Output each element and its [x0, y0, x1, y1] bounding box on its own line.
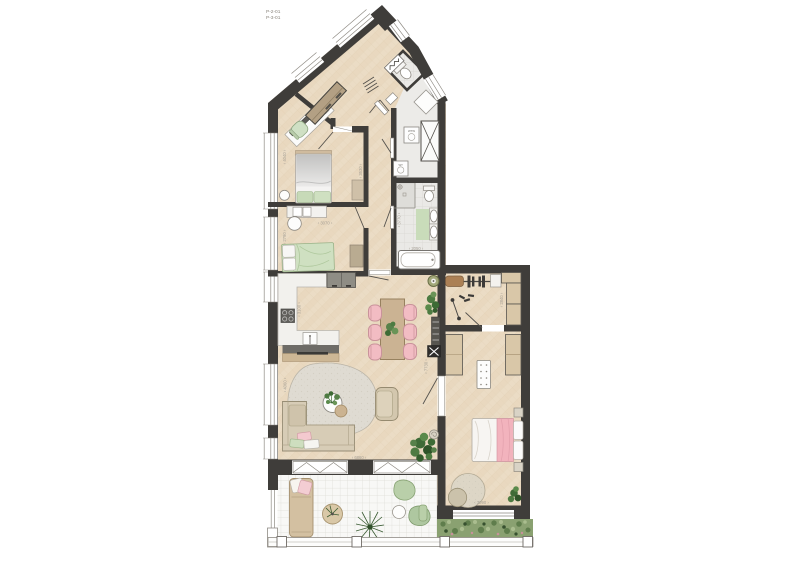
- svg-text:‹ 7730 ›: ‹ 7730 ›: [423, 359, 428, 374]
- svg-text:WTW: WTW: [408, 129, 415, 133]
- svg-text:‹ 2840 ›: ‹ 2840 ›: [499, 292, 504, 307]
- svg-text:‹ 6860 ›: ‹ 6860 ›: [352, 455, 367, 460]
- svg-text:‹ 4060 ›: ‹ 4060 ›: [283, 377, 288, 392]
- svg-text:‹ 3070 ›: ‹ 3070 ›: [318, 221, 333, 226]
- svg-text:P-2-01: P-2-01: [266, 9, 281, 15]
- svg-text:‹ 4040 ›: ‹ 4040 ›: [282, 149, 287, 164]
- svg-text:WT: WT: [399, 163, 404, 167]
- svg-text:‹ 2790 ›: ‹ 2790 ›: [282, 229, 287, 244]
- svg-text:‹ 3100 ›: ‹ 3100 ›: [297, 302, 302, 317]
- svg-text:‹ 3090 ›: ‹ 3090 ›: [474, 500, 489, 505]
- svg-text:‹ 3770 ›: ‹ 3770 ›: [397, 212, 402, 227]
- svg-text:‹ 2050 ›: ‹ 2050 ›: [409, 246, 424, 251]
- svg-text:P-3-01: P-3-01: [266, 15, 281, 21]
- svg-text:‹ 3530 ›: ‹ 3530 ›: [358, 163, 363, 178]
